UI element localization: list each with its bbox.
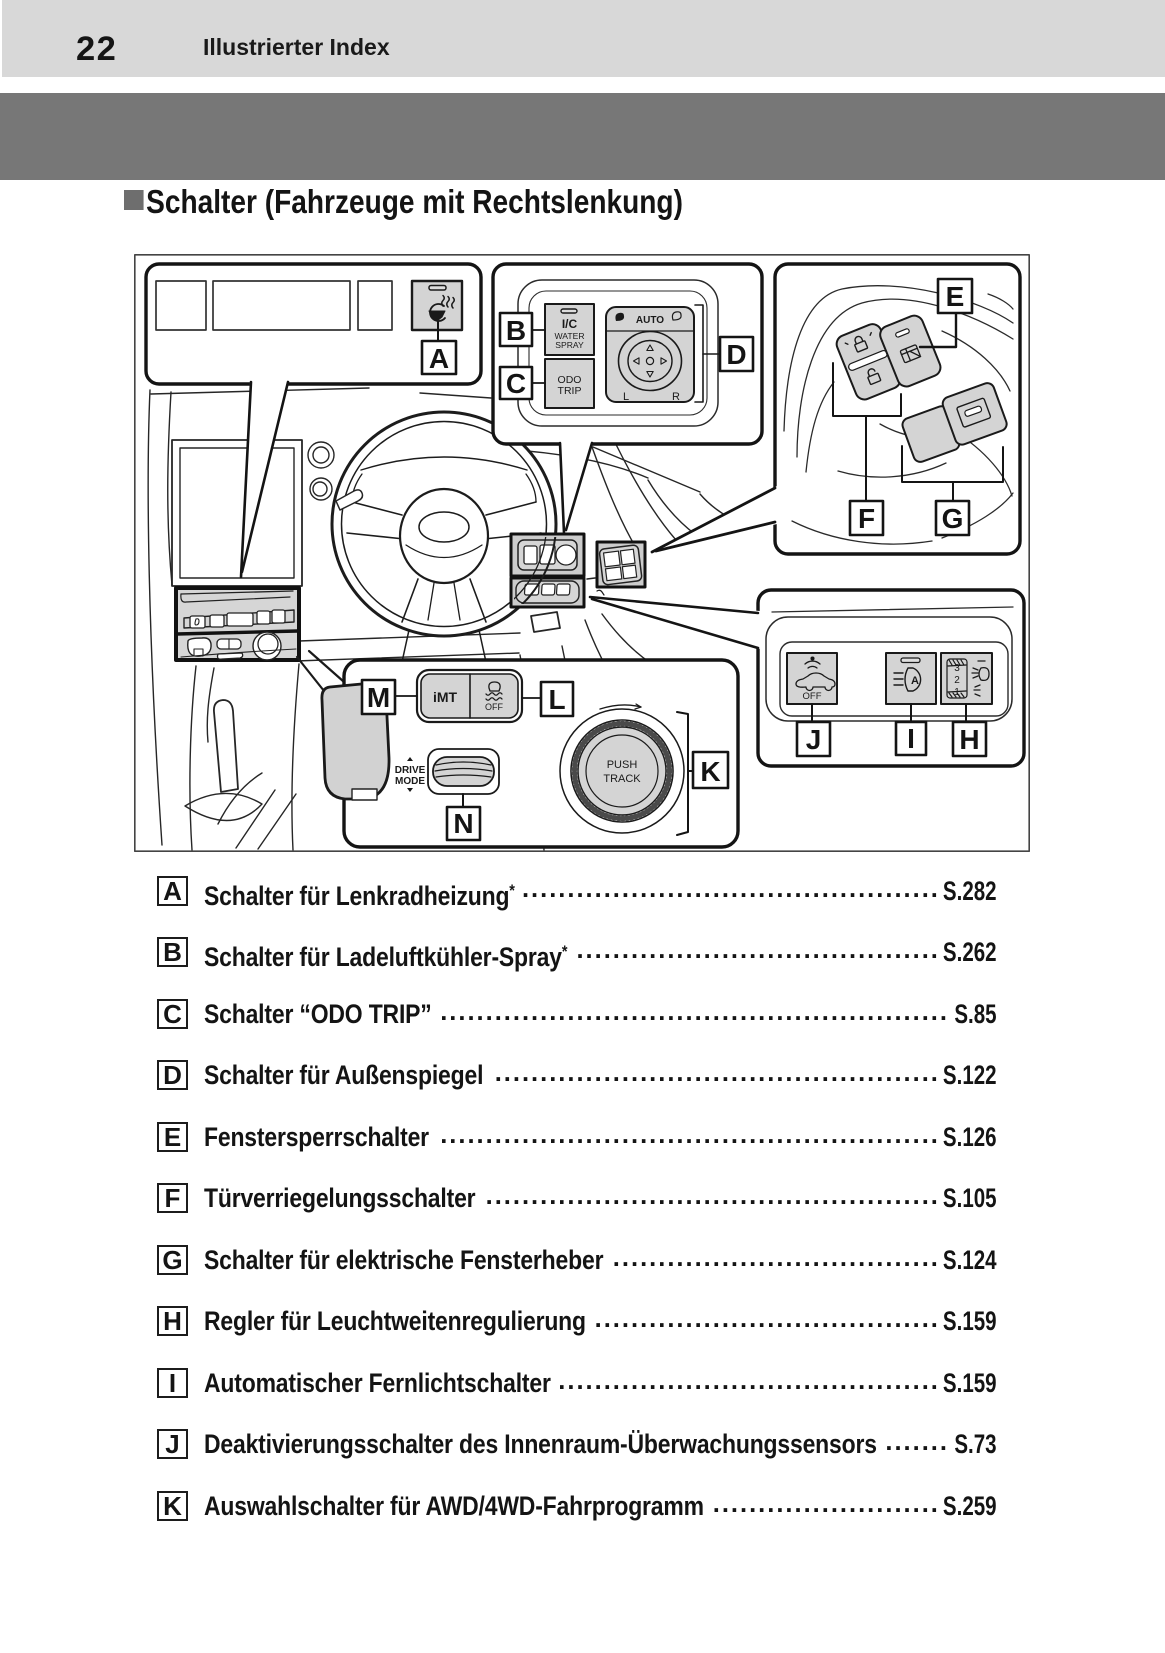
svg-text:1: 1	[954, 687, 960, 698]
svg-text:iMT: iMT	[433, 689, 458, 705]
svg-text:OFF: OFF	[803, 691, 822, 702]
svg-text:J: J	[806, 724, 822, 755]
svg-text:I: I	[907, 723, 915, 754]
svg-text:A: A	[911, 675, 919, 687]
svg-text:L: L	[548, 684, 565, 715]
svg-text:TRACK: TRACK	[603, 773, 641, 785]
svg-text:K: K	[700, 756, 720, 787]
svg-text:G: G	[942, 503, 964, 534]
svg-text:A: A	[429, 343, 449, 374]
svg-text:E: E	[946, 281, 965, 312]
svg-text:AUTO: AUTO	[636, 315, 664, 326]
svg-text:TRIP: TRIP	[558, 385, 582, 397]
svg-text:C: C	[506, 368, 526, 399]
svg-text:L: L	[623, 391, 629, 403]
svg-text:MODE: MODE	[395, 776, 425, 787]
svg-text:F: F	[858, 503, 875, 534]
svg-text:3: 3	[954, 663, 960, 674]
svg-text:SPRAY: SPRAY	[555, 340, 584, 350]
svg-text:B: B	[506, 315, 526, 346]
svg-text:OFF: OFF	[485, 702, 503, 712]
svg-text:R: R	[672, 391, 680, 403]
svg-text:PUSH: PUSH	[607, 759, 638, 771]
svg-text:I/C: I/C	[562, 317, 578, 331]
svg-text:D: D	[726, 339, 746, 370]
svg-text:DRIVE: DRIVE	[395, 765, 426, 776]
svg-text:2: 2	[954, 675, 960, 686]
svg-text:M: M	[367, 682, 390, 713]
svg-text:H: H	[959, 724, 979, 755]
svg-text:N: N	[453, 808, 473, 839]
